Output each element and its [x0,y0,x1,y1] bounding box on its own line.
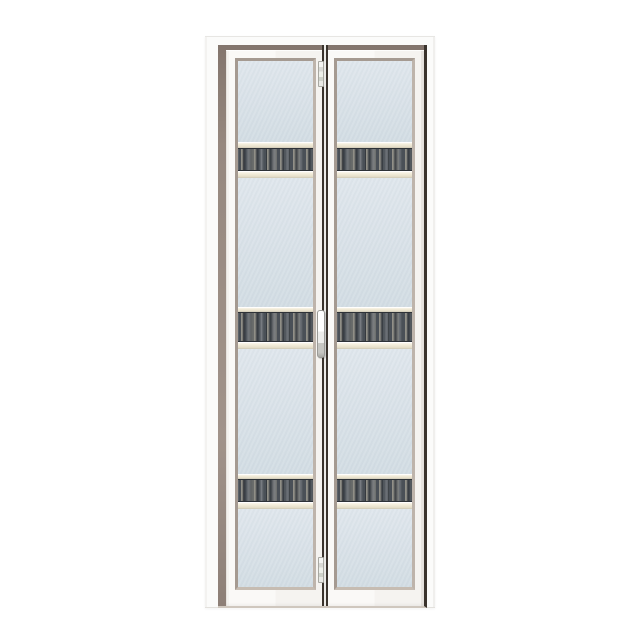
glass-panel [337,178,412,307]
top-hinge [318,61,324,87]
glass-panel [238,509,313,587]
right-door-leaf [325,50,424,606]
bottom-hinge [318,557,324,583]
accent-strip [238,148,313,171]
pull-handle [317,310,325,358]
glass-panel [238,61,313,142]
glass-panel [238,178,313,307]
accent-strip [238,479,313,502]
accent-strip [238,312,313,342]
cream-rail [238,342,313,349]
cream-rail [238,171,313,178]
glass-panel [337,349,412,474]
left-leaf-glazing [235,58,316,590]
accent-strip [337,312,412,342]
cream-rail [337,502,412,509]
door-frame [205,36,435,608]
accent-strip [337,148,412,171]
accent-strip [337,479,412,502]
cream-rail [238,502,313,509]
cream-rail [337,342,412,349]
cream-rail [337,171,412,178]
glass-panel [337,61,412,142]
left-door-leaf [226,50,325,606]
glass-panel [337,509,412,587]
right-leaf-glazing [334,58,415,590]
glass-panel [238,349,313,474]
